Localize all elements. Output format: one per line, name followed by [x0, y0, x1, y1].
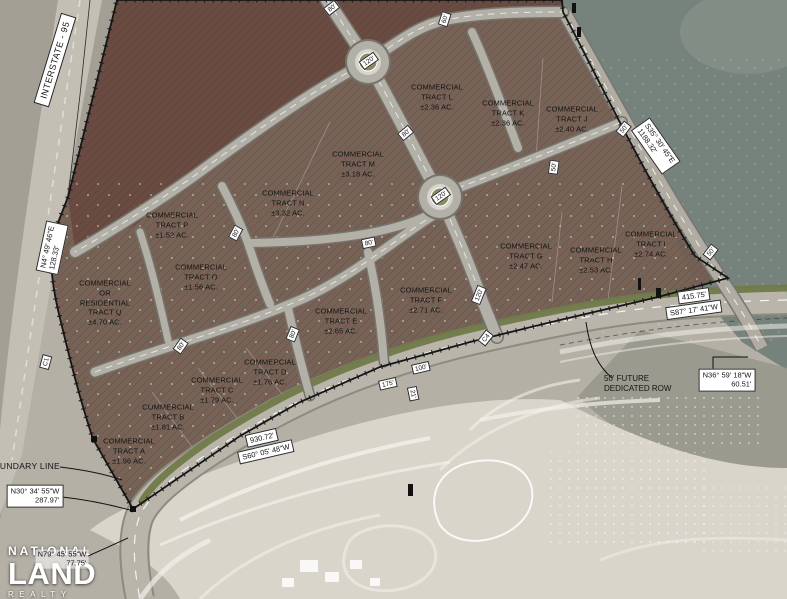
tract-label-c: COMMERCIAL TRACT C ±1.79 AC.	[191, 375, 243, 404]
distance-text: 60.51'	[703, 380, 752, 389]
boundary-line-note: BOUNDARY LINE	[0, 461, 60, 472]
tract-label-l: COMMERCIAL TRACT L ±2.36 AC.	[411, 82, 463, 111]
tract-label-e: COMMERCIAL TRACT E ±2.65 AC.	[315, 306, 367, 335]
bearing-label-east-corner: N36° 59' 18"W 60.51'	[699, 369, 756, 392]
distance-text: 77.75'	[38, 559, 87, 568]
tract-label-i: COMMERCIAL TRACT I ±2.74 AC.	[625, 229, 677, 258]
tract-label-q: COMMERCIAL OR RESIDENTIAL TRACT Q ±4.70 …	[79, 279, 131, 328]
tract-label-m: COMMERCIAL TRACT M ±3.18 AC.	[332, 149, 384, 178]
bearing-label-south-tip: N79° 45' 55"W 77.75'	[36, 550, 89, 569]
logo-bottom-text: REALTY	[8, 591, 96, 599]
tract-label-d: COMMERCIAL TRACT D ±1.76 AC.	[244, 357, 296, 386]
tract-label-o: COMMERCIAL TRACT O ±1.56 AC.	[175, 262, 227, 291]
tract-label-k: COMMERCIAL TRACT K ±2.36 AC.	[482, 98, 534, 127]
tract-label-g: COMMERCIAL TRACT G ±2.47 AC.	[500, 241, 552, 270]
future-row-note: 50' FUTURE DEDICATED ROW	[604, 374, 671, 395]
parking-dots	[575, 396, 765, 446]
tract-label-n: COMMERCIAL TRACT N ±3.32 AC.	[262, 188, 314, 217]
tract-label-a: COMMERCIAL TRACT A ±1.96 AC.	[103, 436, 155, 465]
bearing-text: N30° 34' 55"W	[11, 487, 60, 496]
tract-label-j: COMMERCIAL TRACT J ±2.40 AC.	[546, 104, 598, 133]
bearing-text: N79° 45' 55"W	[38, 550, 87, 559]
parking-dots	[545, 452, 710, 547]
distance-text: 287.97'	[11, 496, 60, 505]
tract-label-b: COMMERCIAL TRACT B ±1.81 AC.	[142, 402, 194, 431]
site-plan-map: INTERSTATE - 95 COMMERCIAL TRACT L ±2.36…	[0, 0, 787, 599]
road-width-label: 50'	[548, 159, 560, 175]
tract-label-f: COMMERCIAL TRACT F ±2.71 AC.	[400, 285, 452, 314]
tract-label-h: COMMERCIAL TRACT H ±2.53 AC.	[570, 245, 622, 274]
bearing-text: N36° 59' 18"W	[703, 371, 752, 380]
parking-dots	[700, 480, 787, 555]
bearing-label-southwest: N30° 34' 55"W 287.97'	[7, 485, 64, 508]
tract-label-p: COMMERCIAL TRACT P ±1.52 AC.	[146, 210, 198, 239]
